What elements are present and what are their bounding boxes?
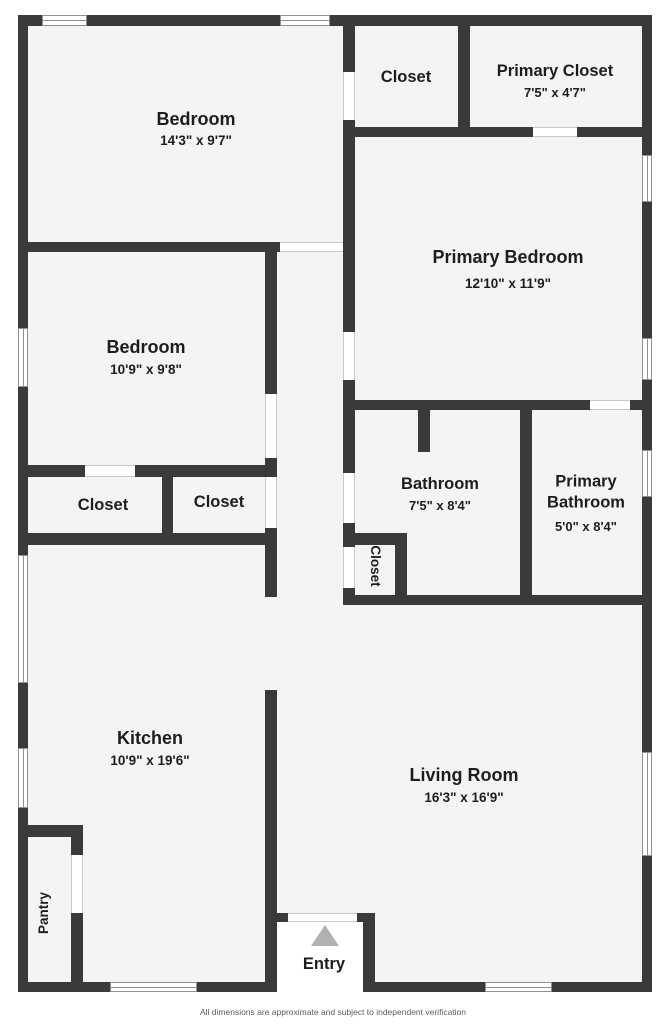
window-primary-bedroom-right-1 <box>642 155 652 202</box>
wall-hall-closet-right <box>395 533 407 605</box>
room-dims-bedroom1: 14'3" x 9'7" <box>160 133 232 149</box>
door-bedroom1-closet <box>343 72 355 120</box>
wall-closet-divider-top <box>458 26 470 127</box>
room-label-entry: Entry <box>303 955 345 975</box>
window-bedroom1-top-2 <box>280 15 330 26</box>
room-dims-bedroom2: 10'9" x 9'8" <box>110 362 182 378</box>
room-label-bedroom1: Bedroom <box>156 109 235 131</box>
door-bedroom2-hall <box>265 394 277 458</box>
room-label-kitchen: Kitchen <box>117 728 183 750</box>
window-kitchen-left-2 <box>18 748 28 808</box>
wall-closets-mid-divider <box>162 477 173 533</box>
room-label-closet-right: Closet <box>194 493 244 513</box>
door-bedroom1-hall <box>280 242 343 252</box>
door-bedroom2-closet <box>85 465 135 477</box>
window-bedroom1-top-1 <box>42 15 87 26</box>
window-living-room-bottom <box>485 982 552 992</box>
room-label-bathroom: Bathroom <box>401 475 479 495</box>
room-label-bedroom2: Bedroom <box>106 337 185 359</box>
wall-bathrooms-bottom <box>343 595 652 605</box>
room-dims-primary-bedroom: 12'10" x 11'9" <box>465 276 551 292</box>
door-pantry <box>71 855 83 913</box>
door-primary-closet <box>533 127 577 137</box>
room-label-primary-bathroom: Primary Bathroom <box>527 472 645 515</box>
wall-closets-top-bottom <box>343 127 652 137</box>
room-label-primary-bedroom: Primary Bedroom <box>432 247 583 269</box>
room-label-living-room: Living Room <box>410 765 519 787</box>
wall-bathroom-stub <box>418 410 430 452</box>
room-dims-living-room: 16'3" x 16'9" <box>424 790 503 806</box>
wall-closets-mid-top <box>18 465 277 477</box>
room-label-pantry: Pantry <box>36 892 52 934</box>
room-dims-kitchen: 10'9" x 19'6" <box>110 753 189 769</box>
wall-bedroom-divider <box>18 242 280 252</box>
door-primary-bathroom <box>590 400 630 410</box>
door-primary-bedroom <box>343 332 355 380</box>
opening-kitchen-living <box>265 597 277 690</box>
entry-arrow-icon <box>311 925 339 946</box>
disclaimer-text: All dimensions are approximate and subje… <box>200 1007 466 1017</box>
window-living-room-right <box>642 752 652 856</box>
door-entry-front <box>288 913 357 922</box>
room-label-primary-closet: Primary Closet <box>497 62 613 82</box>
door-bathroom <box>343 473 355 523</box>
window-kitchen-bottom <box>110 982 197 992</box>
wall-entry-right <box>363 913 375 992</box>
room-label-closet-left: Closet <box>78 496 128 516</box>
wall-exterior-top <box>18 15 652 26</box>
room-dims-primary-closet: 7'5" x 4'7" <box>524 85 586 101</box>
room-dims-bathroom: 7'5" x 8'4" <box>409 498 471 514</box>
floor-plan: Bedroom 14'3" x 9'7" Closet Primary Clos… <box>0 0 667 1024</box>
room-label-closet-top: Closet <box>381 68 431 88</box>
door-hall-closet <box>343 547 355 588</box>
wall-exterior-left <box>18 15 28 992</box>
window-bedroom2-left <box>18 328 28 387</box>
room-dims-primary-bathroom: 5'0" x 8'4" <box>555 519 617 535</box>
wall-kitchen-top <box>18 533 277 545</box>
door-closet-right-hall <box>265 477 277 528</box>
room-label-closet-hall: Closet <box>367 545 383 586</box>
window-kitchen-left-1 <box>18 555 28 683</box>
window-primary-bedroom-right-2 <box>642 338 652 380</box>
